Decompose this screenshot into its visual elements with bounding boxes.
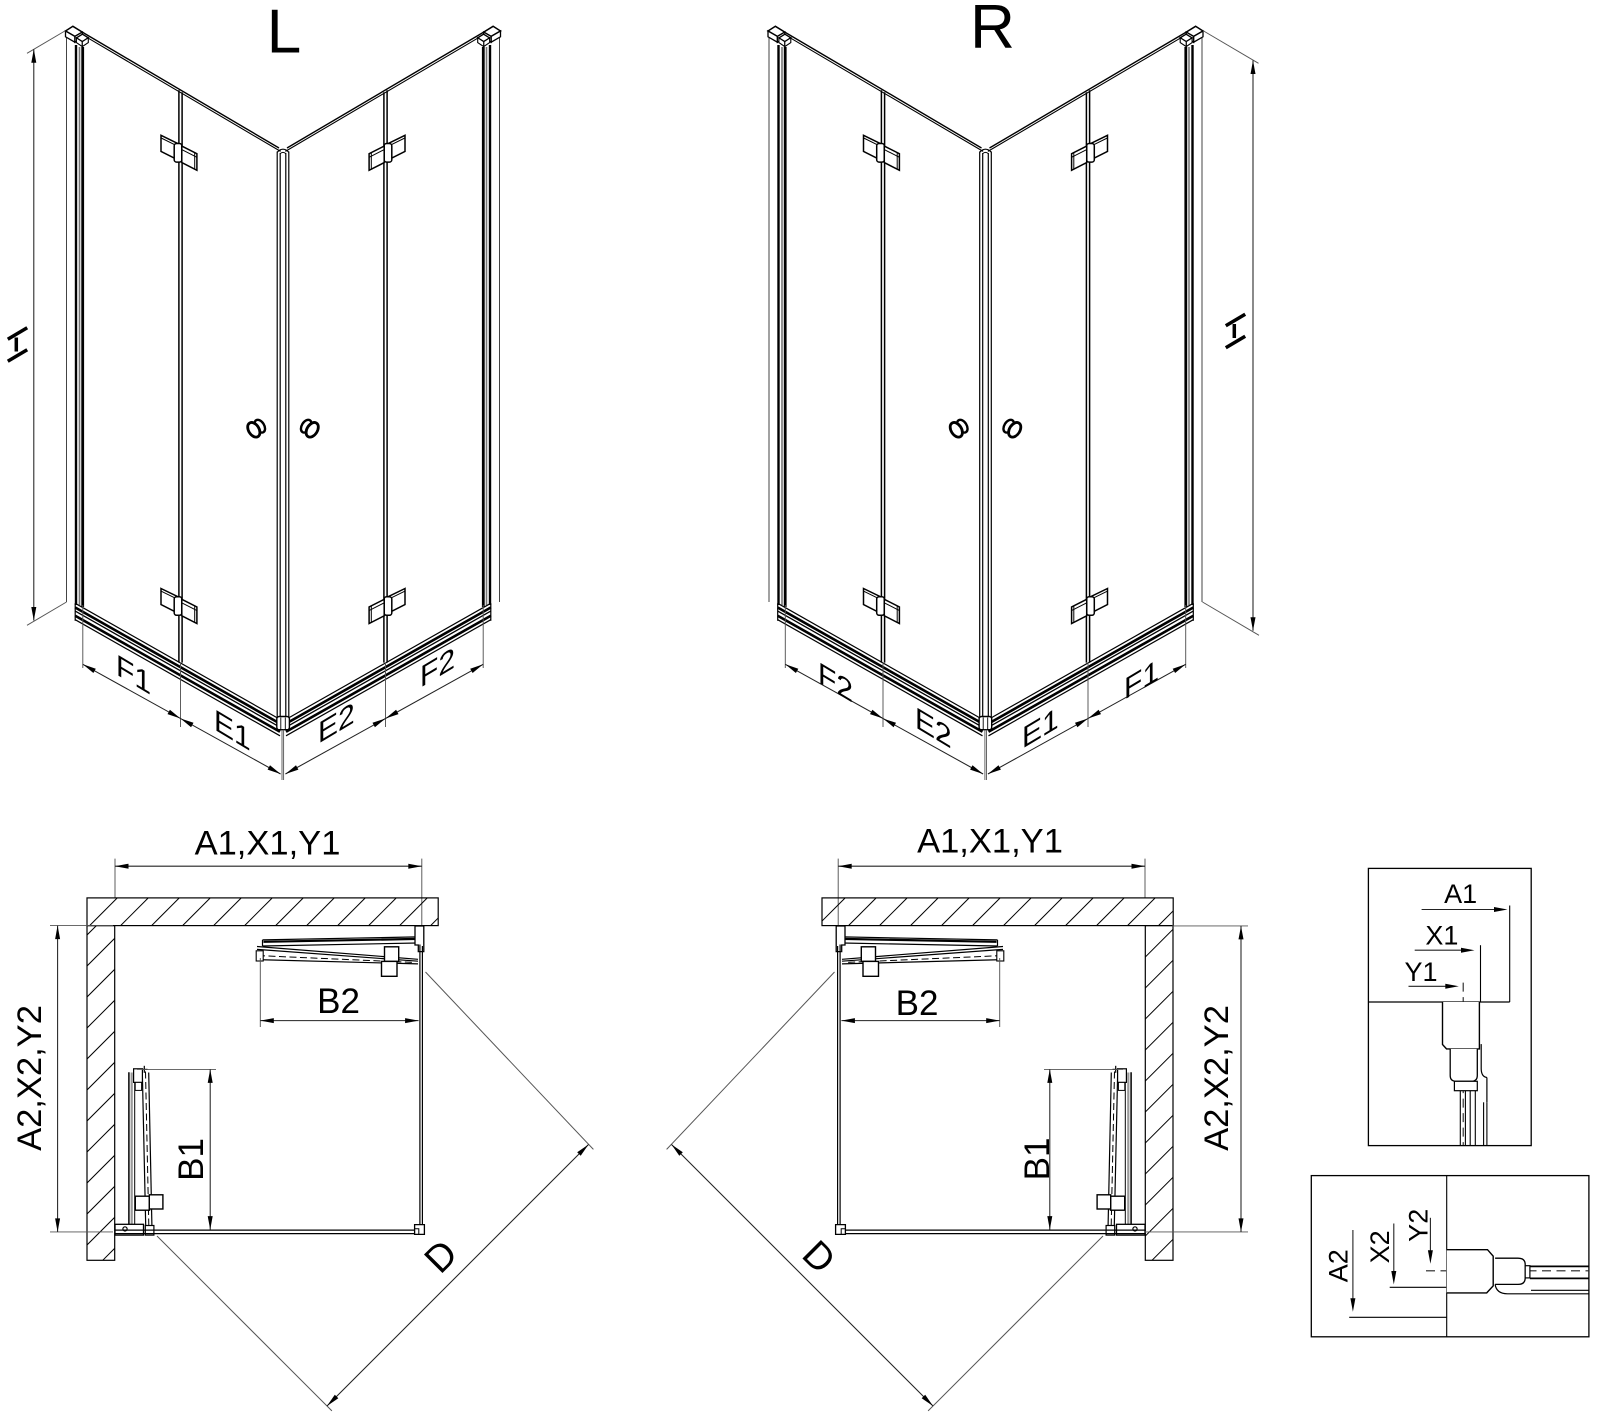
svg-text:Y2: Y2	[1404, 1209, 1434, 1242]
svg-text:A1,X1,Y1: A1,X1,Y1	[195, 825, 341, 863]
svg-text:B1: B1	[1018, 1138, 1057, 1181]
svg-text:A2,X2,Y2: A2,X2,Y2	[11, 1005, 49, 1151]
svg-text:L: L	[267, 0, 301, 67]
svg-text:A2,X2,Y2: A2,X2,Y2	[1198, 1005, 1236, 1151]
svg-text:X1: X1	[1425, 921, 1458, 951]
svg-text:A2: A2	[1324, 1249, 1354, 1282]
svg-text:A1,X1,Y1: A1,X1,Y1	[917, 823, 1063, 861]
svg-text:B1: B1	[172, 1138, 211, 1181]
svg-text:R: R	[970, 0, 1015, 62]
svg-text:X2: X2	[1365, 1230, 1395, 1263]
svg-text:B2: B2	[317, 982, 360, 1021]
svg-text:Y1: Y1	[1404, 957, 1437, 987]
svg-text:B2: B2	[896, 984, 939, 1023]
svg-text:A1: A1	[1444, 879, 1477, 909]
